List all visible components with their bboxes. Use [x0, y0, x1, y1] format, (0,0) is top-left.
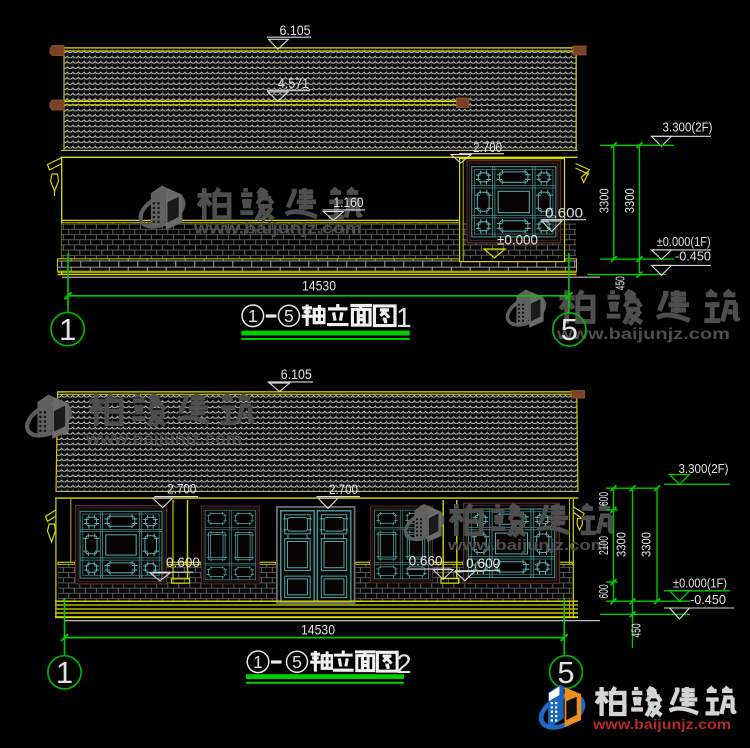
svg-text:1: 1	[253, 652, 263, 672]
svg-text:2.700: 2.700	[167, 482, 196, 497]
svg-text:1: 1	[248, 306, 258, 326]
svg-text:600: 600	[597, 584, 611, 598]
svg-text:0.600: 0.600	[466, 556, 500, 571]
svg-text:14530: 14530	[301, 623, 335, 638]
svg-text:3300: 3300	[597, 188, 612, 213]
svg-text:1.160: 1.160	[334, 195, 364, 210]
svg-text:1: 1	[59, 312, 76, 347]
svg-text:-0.450: -0.450	[690, 593, 726, 607]
svg-text:www.baijunjz.com: www.baijunjz.com	[592, 716, 731, 732]
svg-text:1: 1	[396, 302, 412, 333]
svg-text:www.baijunjz.com: www.baijunjz.com	[85, 432, 242, 448]
svg-text:www.baijunjz.com: www.baijunjz.com	[447, 538, 607, 554]
svg-text:5: 5	[561, 312, 578, 347]
svg-text:±0.000(1F): ±0.000(1F)	[673, 577, 727, 591]
svg-text:www.baijunjz.com: www.baijunjz.com	[193, 221, 362, 238]
svg-text:-0.450: -0.450	[675, 250, 711, 264]
svg-text:14530: 14530	[302, 279, 336, 294]
svg-text:3300: 3300	[614, 532, 629, 557]
svg-text:1: 1	[56, 655, 73, 690]
svg-text:5: 5	[284, 306, 294, 326]
svg-text:5: 5	[557, 655, 574, 690]
svg-text:3300: 3300	[622, 188, 637, 213]
svg-text:2.700: 2.700	[329, 482, 358, 497]
svg-text:5: 5	[292, 652, 302, 672]
svg-text:2100: 2100	[597, 536, 611, 555]
svg-text:450: 450	[630, 623, 644, 637]
svg-text:2.700: 2.700	[473, 140, 502, 155]
svg-text:6.105: 6.105	[280, 23, 311, 38]
svg-text:6.105: 6.105	[281, 367, 312, 382]
svg-text:0.600: 0.600	[545, 206, 583, 221]
svg-text:4.571: 4.571	[278, 76, 309, 91]
svg-text:±0.000: ±0.000	[497, 233, 538, 248]
svg-text:450: 450	[614, 276, 628, 290]
svg-text:3.300(2F): 3.300(2F)	[663, 121, 713, 135]
svg-text:±0.000(1F): ±0.000(1F)	[657, 235, 711, 249]
svg-text:0.660: 0.660	[409, 553, 443, 568]
svg-text:600: 600	[597, 492, 611, 506]
svg-text:3300: 3300	[639, 532, 654, 557]
svg-text:0.600: 0.600	[166, 555, 200, 570]
